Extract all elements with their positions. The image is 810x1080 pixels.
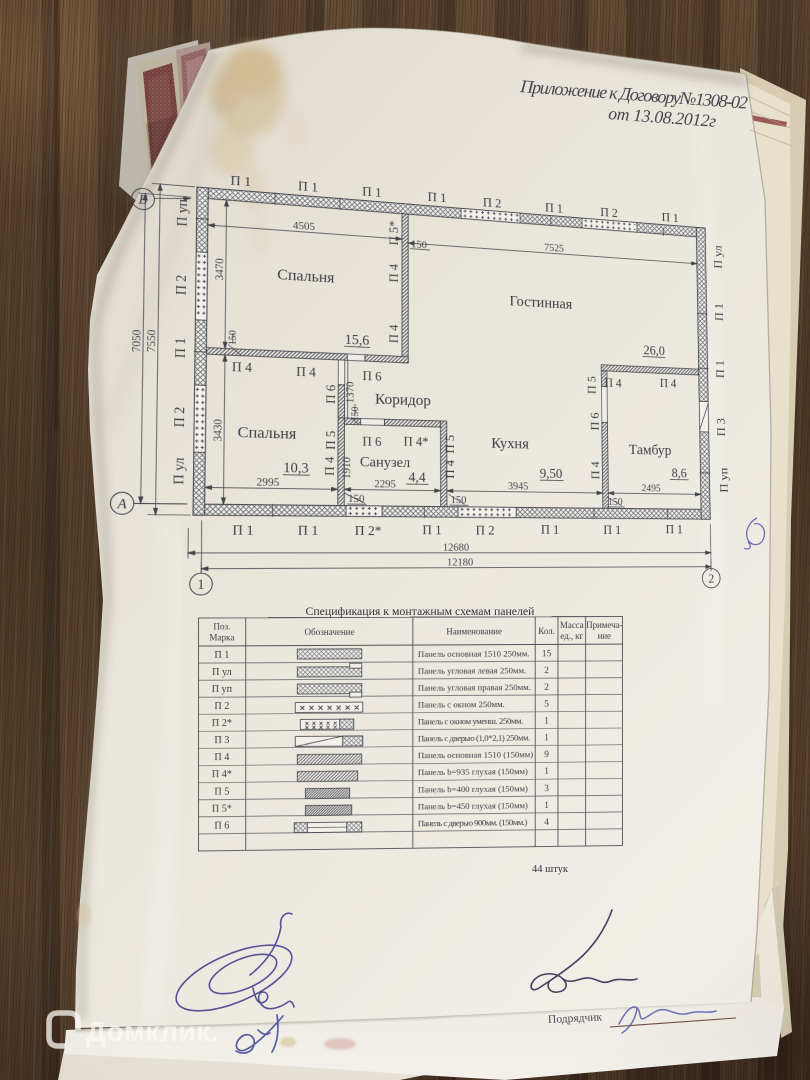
svg-text:Подрядчик: Подрядчик [548, 1011, 603, 1026]
svg-text:44 штук: 44 штук [532, 864, 569, 875]
svg-text:Домклик.: Домклик. [86, 1016, 219, 1047]
svg-text:Спецификация к монтажным схема: Спецификация к монтажным схемам панелей [306, 604, 536, 618]
